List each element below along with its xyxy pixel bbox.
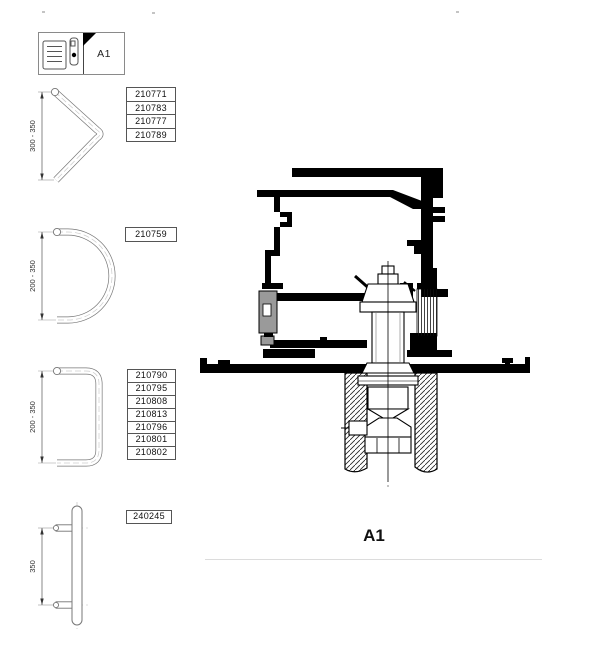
part-number-cell: 210790 — [128, 370, 175, 382]
d-handle-drawing: 200 - 350 — [20, 365, 120, 470]
dimension-label: 300 - 350 — [28, 120, 37, 152]
dimension-label: 200 - 350 — [28, 401, 37, 433]
parts-table-bar-handle: 240245 — [126, 510, 172, 524]
dimension-label: 350 — [28, 560, 37, 573]
handle-profile-icon — [70, 38, 78, 65]
parts-table-d-handle: 210790 210795 210808 210813 210796 21080… — [127, 369, 176, 460]
print-speck — [152, 12, 155, 14]
parts-table-c-handle: 210759 — [125, 227, 177, 242]
part-number-cell: 210759 — [126, 228, 176, 241]
print-speck — [456, 11, 459, 13]
part-number-cell: 210783 — [127, 101, 175, 115]
v-handle-drawing: 300 - 350 — [20, 85, 120, 185]
legend-label: A1 — [97, 48, 111, 60]
part-number-cell: 210796 — [128, 421, 175, 434]
part-number-cell: 240245 — [127, 511, 171, 523]
thumbnail-graphics — [39, 34, 83, 73]
centerline-mark — [387, 485, 389, 487]
handle-tube — [50, 502, 88, 629]
part-number-cell: 210789 — [127, 128, 175, 142]
part-number-cell: 210777 — [127, 114, 175, 128]
part-number-cell: 210808 — [128, 395, 175, 408]
section-label: A1 — [336, 526, 412, 546]
brush-gasket-strip — [417, 289, 437, 336]
handle-tube — [51, 88, 100, 180]
handle-tube — [53, 367, 99, 463]
handle-tube — [53, 228, 112, 320]
dimension: 200 - 350 — [28, 232, 56, 320]
dimension: 350 — [28, 528, 54, 605]
part-number-cell: 210802 — [128, 446, 175, 459]
section-drawing-a1 — [195, 150, 540, 495]
detail-legend-box: A1 — [38, 32, 125, 75]
parts-table-v-handle: 210771 210783 210777 210789 — [126, 87, 176, 142]
glazing-gasket-block — [259, 291, 277, 345]
louver-icon — [43, 41, 66, 69]
part-number-cell: 210771 — [127, 88, 175, 101]
print-speck — [42, 11, 45, 13]
dimension: 300 - 350 — [28, 92, 54, 180]
profile-thumbnail — [39, 33, 84, 74]
dimension-label: 200 - 350 — [28, 260, 37, 292]
c-handle-drawing: 200 - 350 — [20, 222, 125, 334]
footer-divider-line — [205, 559, 542, 560]
part-number-cell: 210795 — [128, 382, 175, 395]
part-number-cell: 210813 — [128, 408, 175, 421]
legend-cell: A1 — [84, 33, 124, 74]
dimension: 200 - 350 — [28, 371, 56, 463]
frame-profile-cross-section — [200, 168, 530, 373]
part-number-cell: 210801 — [128, 433, 175, 446]
bar-handle-drawing: 350 — [20, 500, 120, 635]
